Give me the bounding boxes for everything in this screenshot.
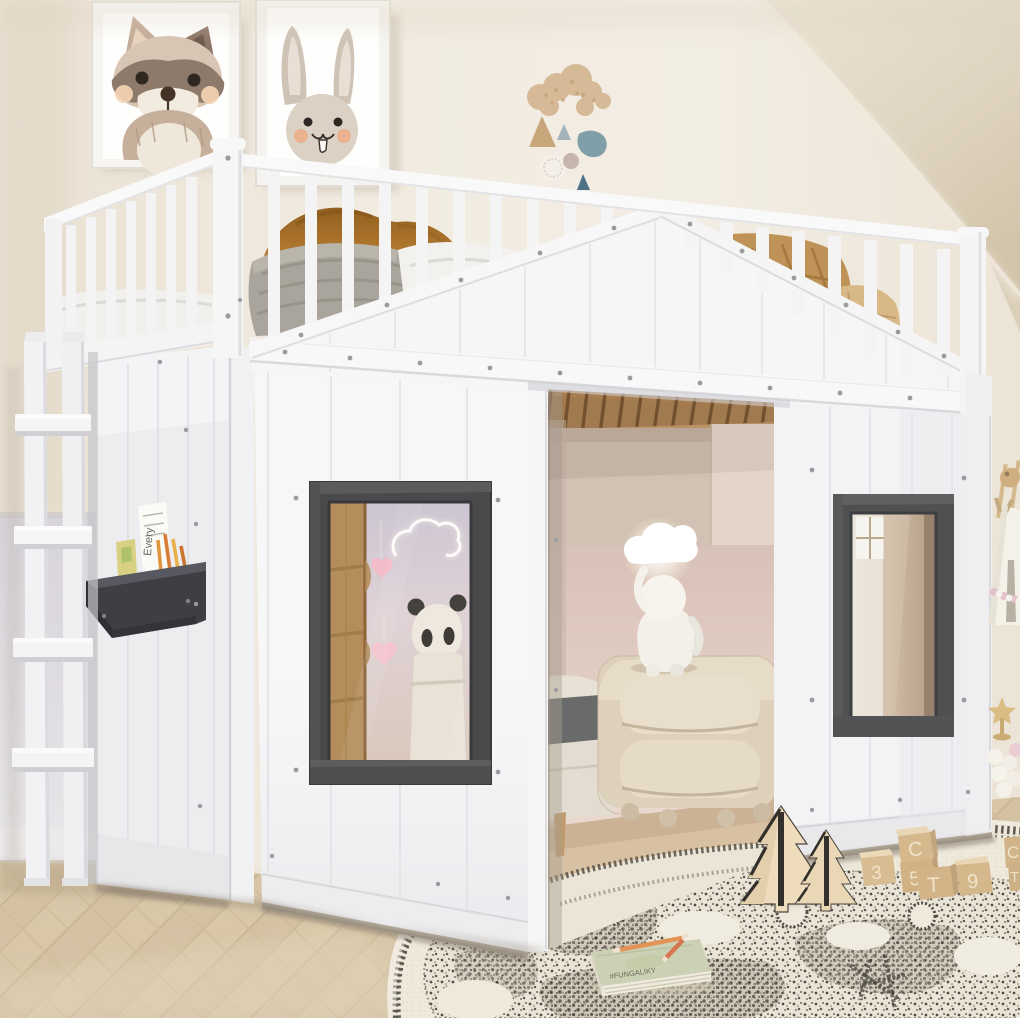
svg-text:C: C [907,838,923,861]
svg-text:C: C [1007,843,1019,862]
svg-text:Every: Every [142,527,156,556]
svg-text:3: 3 [871,863,883,885]
svg-text:T: T [1010,869,1019,886]
svg-text:T: T [927,874,941,898]
svg-text:9: 9 [967,871,979,894]
